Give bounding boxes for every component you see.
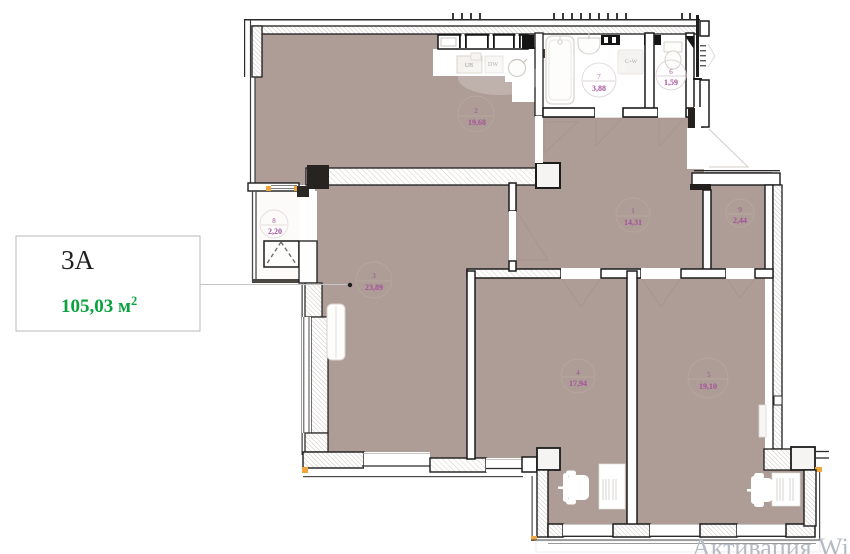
svg-text:Активация Wi: Активация Wi: [692, 533, 849, 554]
svg-text:3A: 3A: [61, 245, 95, 275]
svg-text:23,89: 23,89: [365, 283, 383, 292]
svg-text:4: 4: [576, 369, 580, 377]
svg-text:1: 1: [631, 207, 635, 215]
svg-text:6: 6: [669, 68, 673, 76]
svg-text:5: 5: [707, 371, 711, 379]
svg-text:9: 9: [738, 206, 742, 214]
svg-text:3,88: 3,88: [592, 84, 606, 93]
svg-text:3: 3: [372, 272, 376, 280]
svg-text:105,03 м2: 105,03 м2: [61, 294, 137, 317]
svg-text:C+W: C+W: [625, 59, 638, 65]
svg-text:19,68: 19,68: [468, 118, 486, 127]
svg-text:17,94: 17,94: [569, 379, 587, 388]
svg-text:14,31: 14,31: [624, 218, 642, 227]
svg-text:19,10: 19,10: [699, 382, 717, 391]
svg-text:2: 2: [474, 107, 478, 115]
svg-text:1,59: 1,59: [664, 78, 678, 87]
svg-text:2,44: 2,44: [733, 216, 747, 225]
svg-text:8: 8: [272, 217, 276, 225]
svg-text:2,20: 2,20: [268, 227, 282, 236]
